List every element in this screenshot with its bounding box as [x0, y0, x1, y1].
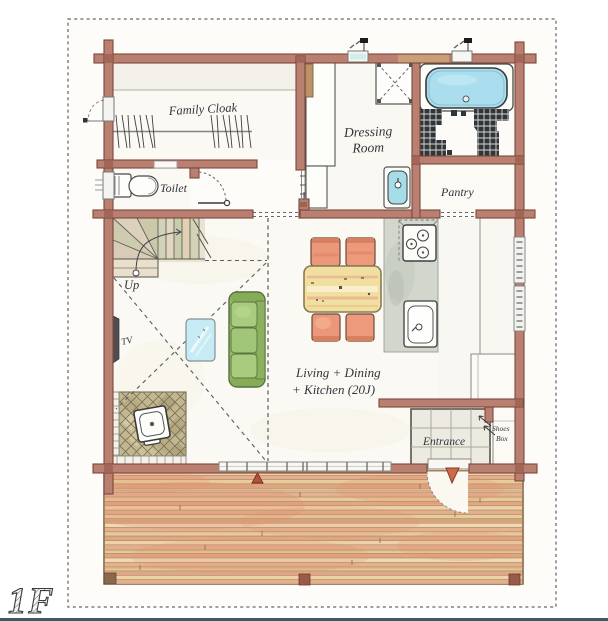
svg-text:Dressing: Dressing: [343, 123, 393, 140]
svg-text:+ Kitchen (20J): + Kitchen (20J): [292, 382, 375, 397]
svg-text:Up: Up: [124, 278, 139, 292]
svg-text:1F: 1F: [8, 581, 55, 621]
svg-text:Room: Room: [351, 140, 384, 156]
svg-text:Toilet: Toilet: [160, 181, 188, 195]
svg-text:Entrance: Entrance: [422, 436, 465, 448]
svg-text:Shoes: Shoes: [492, 424, 510, 433]
svg-text:Pantry: Pantry: [440, 185, 474, 199]
svg-text:Living + Dining: Living + Dining: [295, 365, 381, 380]
svg-text:Box: Box: [496, 434, 508, 443]
